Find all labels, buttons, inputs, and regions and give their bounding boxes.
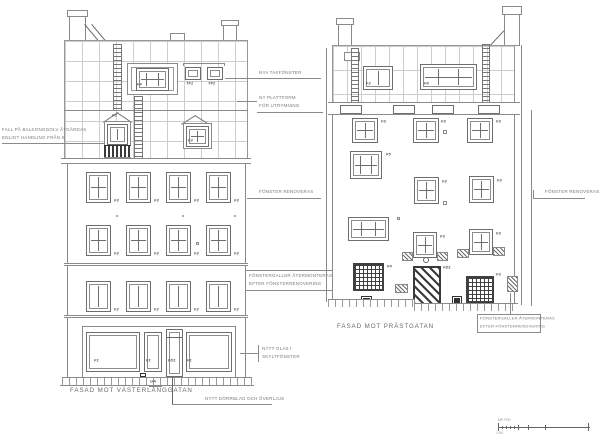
window-label: F3 <box>441 119 446 124</box>
scale-tick <box>506 426 507 429</box>
window <box>414 177 439 204</box>
band-window <box>478 105 500 114</box>
annotation-roof-windows: NYA TAKFÖNSTER <box>259 70 302 75</box>
shop-window <box>86 332 140 372</box>
door-mark-label: GA <box>150 379 156 384</box>
facade-ornament <box>234 215 236 217</box>
window-label: F3 <box>194 251 199 256</box>
flue-slant-line <box>84 24 98 41</box>
facade-ornament <box>182 215 184 217</box>
balcony-railing <box>104 145 131 157</box>
window <box>206 281 231 312</box>
annotation-balcony-line2: ENLIGT HANDLING FRÅN K <box>2 135 65 140</box>
shop-window <box>186 332 232 372</box>
wall-hatch <box>395 284 408 293</box>
window-label: FD1 <box>443 265 451 270</box>
annotation-grilles-line2: EFTER FÖNSTERRENOVERING <box>249 281 321 286</box>
scale-tick <box>518 425 519 430</box>
window <box>166 172 191 203</box>
window-label: F2 <box>114 307 119 312</box>
annotation-platform-line2: FÖR UTRYMNING <box>259 103 300 108</box>
annotation-grilles-line1: FÖNSTERGALLER ÅTERMONTERAS <box>249 273 332 278</box>
chimney <box>69 16 86 41</box>
annotation-leader <box>225 78 321 79</box>
window <box>86 225 111 256</box>
window-label: F3 <box>496 272 501 277</box>
pavement <box>328 299 415 307</box>
dormer-window <box>107 124 128 145</box>
sill-hatch <box>493 247 505 256</box>
scale-tick <box>588 423 589 431</box>
window-label: F2 <box>234 307 239 312</box>
window <box>413 232 437 258</box>
flue-slant-line <box>490 30 504 45</box>
window <box>348 217 389 241</box>
chimney <box>338 24 352 46</box>
window-label: F3 <box>234 198 239 203</box>
right-facade-title: FASAD MOT PRÄSTGATAN <box>337 323 434 330</box>
window-label: F1 <box>187 358 192 363</box>
window-label: F3 <box>442 179 447 184</box>
annotation-bracket <box>258 345 259 362</box>
window <box>86 172 111 203</box>
window-label: F3 <box>381 119 386 124</box>
window <box>126 281 151 312</box>
roof-ladder <box>134 96 143 158</box>
annotation-leader <box>533 198 585 199</box>
roof-window <box>363 66 393 90</box>
annotation-leader <box>247 198 321 199</box>
annotation-shop-glass-line1: NYTT GLAS I <box>262 346 292 351</box>
window <box>469 229 493 255</box>
adjacent-building-line <box>326 48 327 302</box>
window <box>126 172 151 203</box>
scale-tick <box>514 426 515 429</box>
roof-window-bracket <box>183 63 225 64</box>
window <box>352 118 378 143</box>
shop-window <box>144 332 162 372</box>
window-label: F2 <box>112 113 117 118</box>
facade-ornament <box>443 201 447 205</box>
window-label: F3 <box>114 198 119 203</box>
dormer-window <box>186 126 209 147</box>
facade-ornament <box>397 217 400 220</box>
window-label: F3 <box>114 251 119 256</box>
scale-tick <box>510 426 511 429</box>
window <box>467 118 493 143</box>
window-label: F3 <box>234 251 239 256</box>
window-label: F1 <box>94 358 99 363</box>
annotation-door: NYTT DÖRRBLAD OCH ÖVERLJUS <box>205 396 284 401</box>
transom-vent <box>423 257 429 263</box>
roof-ladder <box>482 44 490 104</box>
adjacent-building-line <box>531 110 532 306</box>
chimney <box>504 14 520 46</box>
sill-hatch <box>437 252 448 261</box>
mansard-break-line <box>64 110 248 111</box>
left-facade-title: FASAD MOT VÄSTERLÅNGGATAN <box>70 387 193 394</box>
window-label: F3 <box>154 198 159 203</box>
window-label: F3 <box>497 178 502 183</box>
string-course <box>64 263 248 266</box>
window <box>469 176 494 203</box>
roof-ladder <box>351 48 359 104</box>
window-label: F3 <box>496 231 501 236</box>
window-label: F4 <box>387 264 392 269</box>
window-label: F5 <box>386 152 391 157</box>
window-label: TF1 <box>186 81 193 86</box>
window <box>166 225 191 256</box>
roof-window-small <box>207 67 223 80</box>
pavement <box>62 377 252 385</box>
annotation-leader <box>237 101 257 102</box>
scale-tick <box>498 423 499 431</box>
window-grille <box>353 263 384 291</box>
annotation-leader <box>240 353 258 354</box>
facade-ornament <box>196 242 199 245</box>
adjacent-building-line <box>521 45 522 305</box>
attic-wall <box>64 40 248 160</box>
scale-ratio-label: 1:50 <box>496 431 503 435</box>
window <box>413 118 439 143</box>
band-window <box>340 105 362 114</box>
window-label: F2 <box>154 307 159 312</box>
window-label: F6 <box>424 81 429 86</box>
annotation-leader <box>533 190 534 198</box>
window-label: F3 <box>188 138 193 143</box>
door-transom-line <box>167 337 182 338</box>
window <box>126 225 151 256</box>
bracket-tick <box>183 63 184 66</box>
window-label: F3 <box>496 119 501 124</box>
window <box>350 151 382 179</box>
window-grille <box>466 276 494 303</box>
band-window <box>432 105 454 114</box>
facade-ornament <box>443 130 447 134</box>
window <box>166 281 191 312</box>
annotation-grilles-line1: FÖNSTERGALLER ÅTERMONTERAS <box>480 316 555 321</box>
window-label: F1 <box>146 358 151 363</box>
facade-ornament <box>116 215 118 217</box>
roof-window-small <box>185 67 201 80</box>
annotation-leader <box>510 293 511 314</box>
scale-bar-line <box>498 427 590 428</box>
annotation-platform-line1: NY PLATTFORM <box>259 95 296 100</box>
annotation-leader <box>172 404 272 405</box>
band-window <box>393 105 415 114</box>
window <box>206 172 231 203</box>
window-label: FD1 <box>168 358 176 363</box>
roof-window <box>420 64 477 90</box>
drawing-sheet: F4 TF1 TF2 F2 F3 F3 F3 F3 F3 <box>0 0 600 445</box>
bracket-tick <box>224 63 225 66</box>
window-label: TF2 <box>208 81 215 86</box>
annotation-underline <box>257 112 323 113</box>
flue-slant-line <box>91 24 105 41</box>
window <box>206 225 231 256</box>
roof-window <box>136 68 169 91</box>
pavement <box>414 303 518 311</box>
window-label: F4 <box>137 82 142 87</box>
scale-unit-label: METER <box>498 418 511 422</box>
scale-tick <box>545 425 546 430</box>
window-label: F2 <box>366 81 371 86</box>
entrance-door <box>413 266 441 307</box>
window-label: F3 <box>440 234 445 239</box>
window <box>86 281 111 312</box>
scale-tick <box>502 426 503 429</box>
scale-tick <box>528 425 529 430</box>
annotation-leader <box>2 143 104 144</box>
annotation-windows-renovated: FÖNSTER RENOVERAS <box>259 189 313 194</box>
window-label: F3 <box>154 251 159 256</box>
sill-hatch <box>457 249 469 258</box>
window-label: F2 <box>194 307 199 312</box>
annotation-balcony-line1: FALL PÅ BALKONGGOLV ÅTGÄRDAS <box>2 127 86 132</box>
annotation-grilles-line2: EFTER FÖNSTERRENOVERING <box>480 324 545 329</box>
annotation-windows-renovated: FÖNSTER RENOVERAS <box>545 189 599 194</box>
string-course <box>64 315 248 318</box>
wall-hatch <box>507 276 518 292</box>
window-label: F3 <box>194 198 199 203</box>
annotation-shop-glass-line2: SKYLTFÖNSTER <box>262 354 300 359</box>
roof-ladder <box>113 44 122 110</box>
sill-hatch <box>402 252 413 261</box>
